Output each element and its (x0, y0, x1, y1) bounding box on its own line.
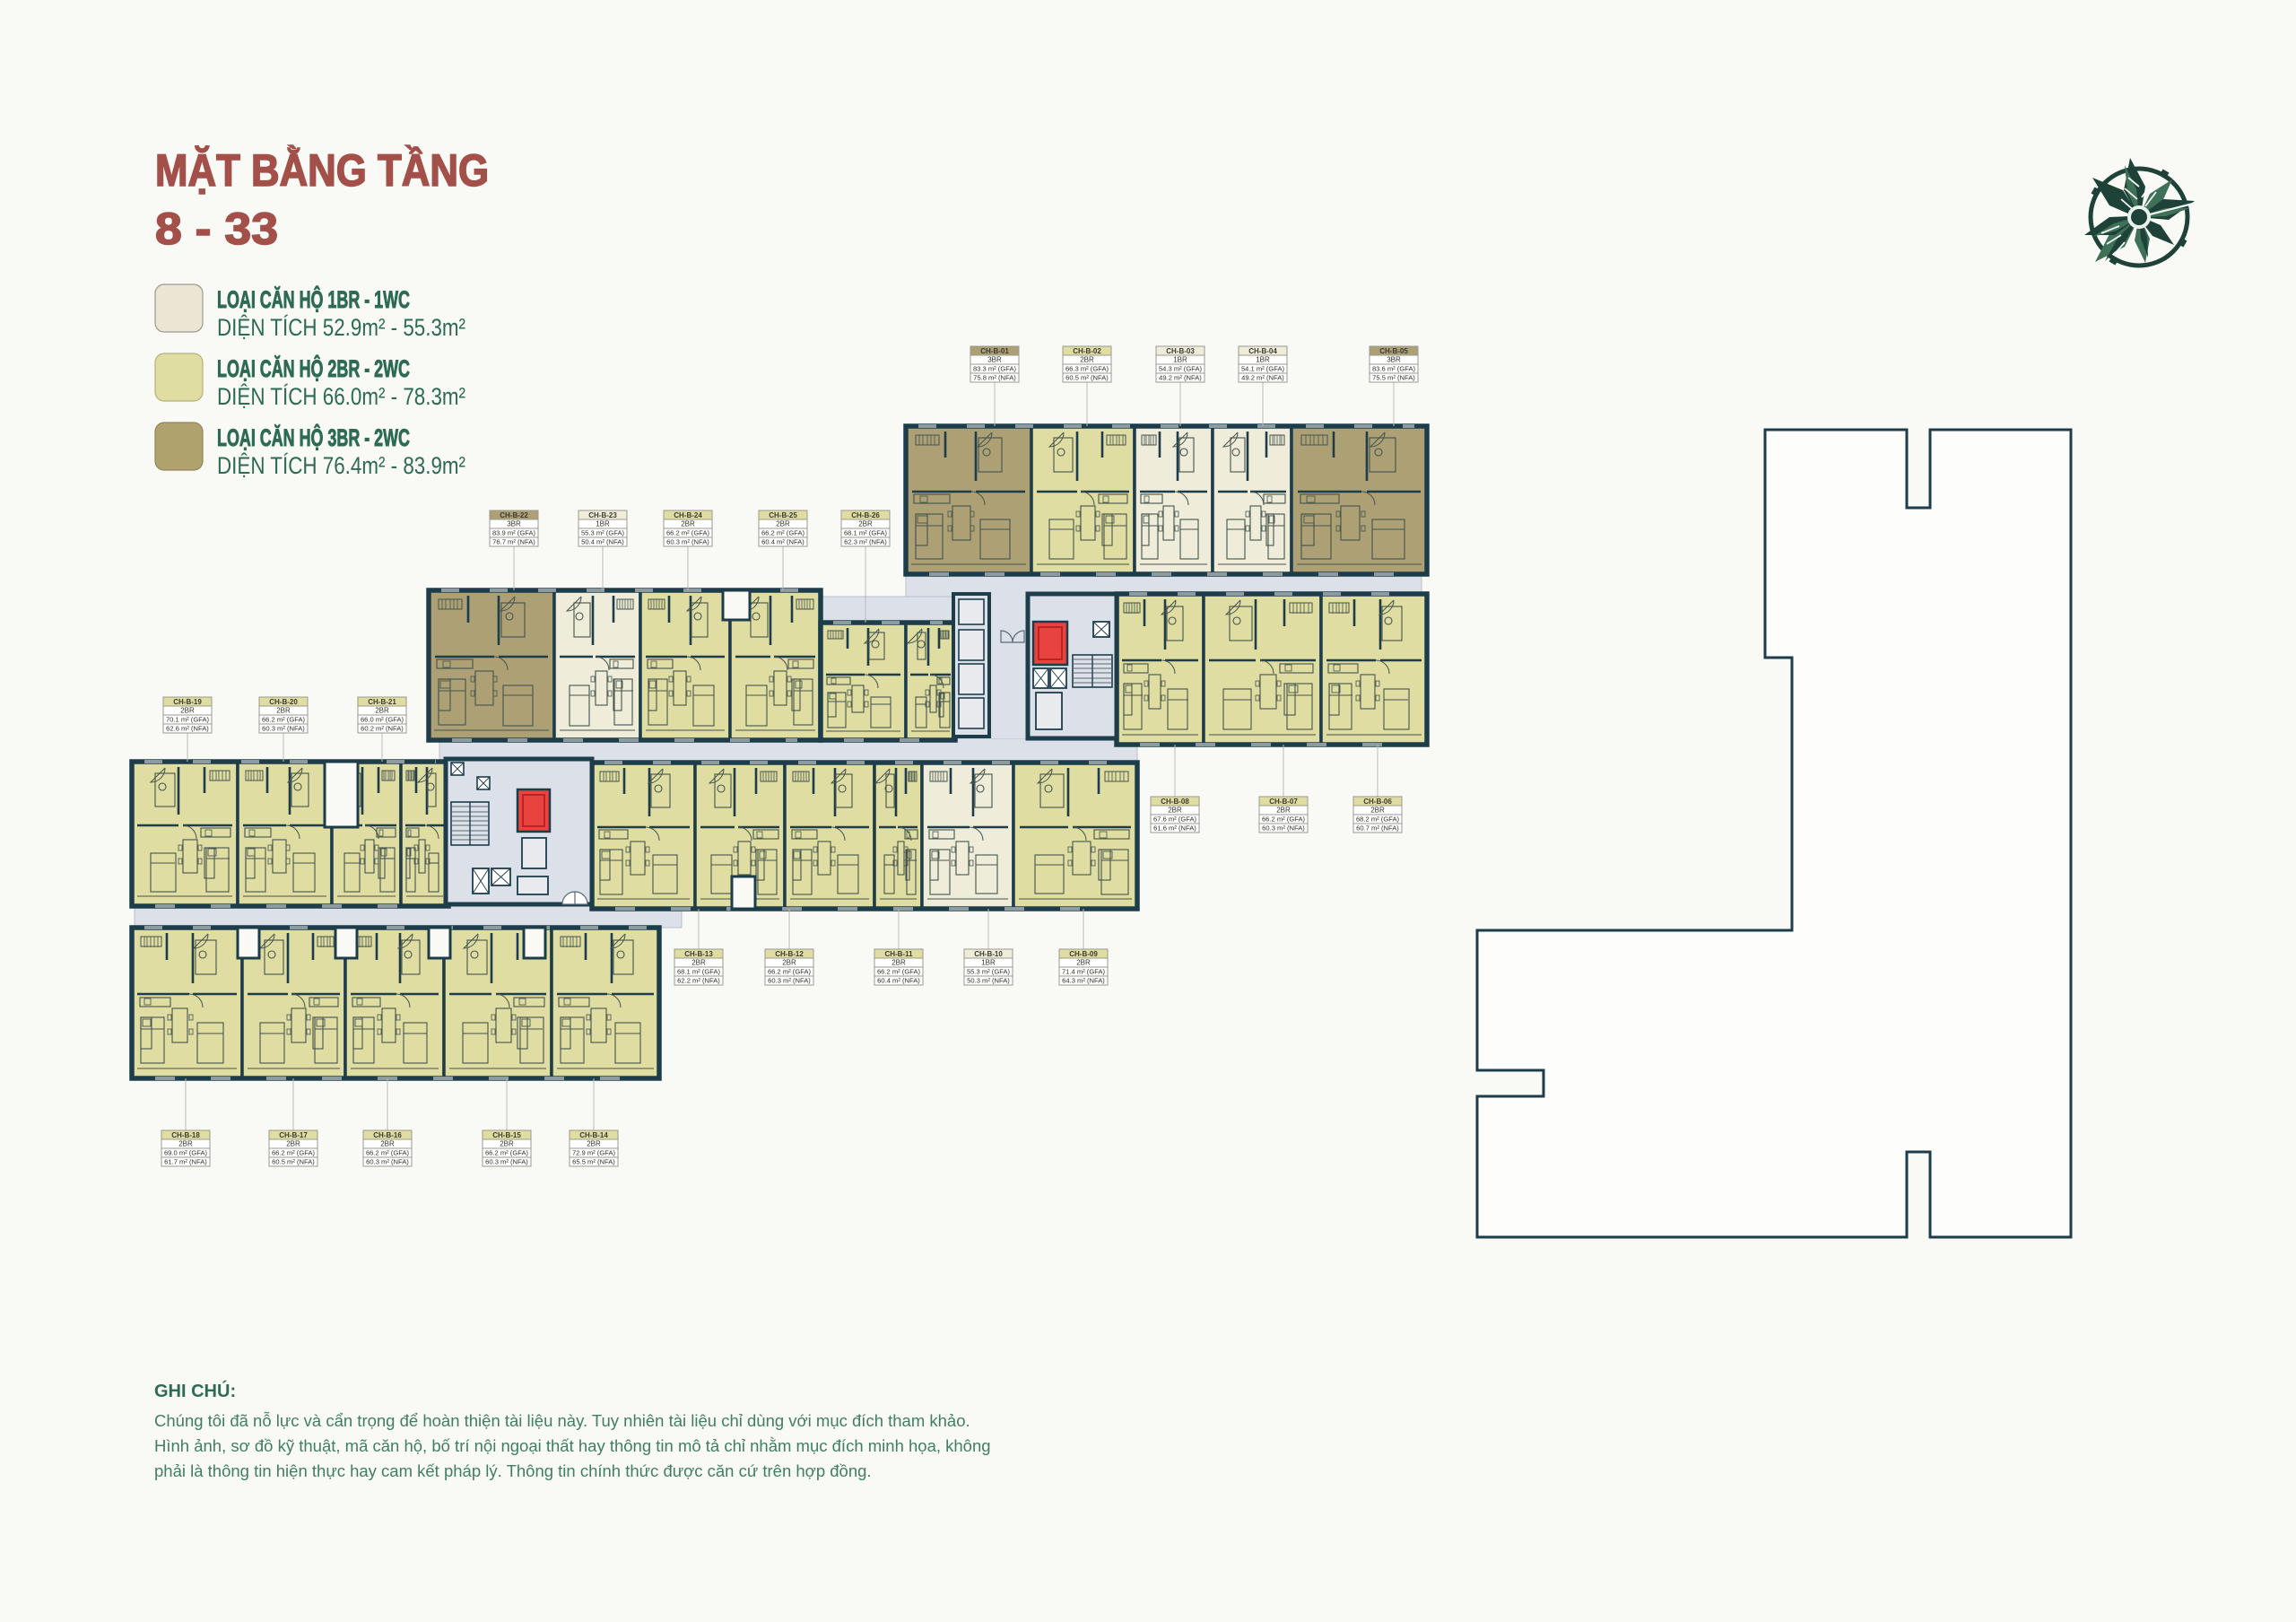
svg-text:66.2 m² (GFA): 66.2 m² (GFA) (485, 1149, 529, 1157)
svg-text:CH-B-23: CH-B-23 (588, 511, 617, 519)
svg-text:CH-B-01: CH-B-01 (980, 347, 1009, 355)
svg-text:phải là thông tin hiện thực ha: phải là thông tin hiện thực hay cam kết … (154, 1461, 872, 1480)
svg-text:62.2 m² (NFA): 62.2 m² (NFA) (677, 977, 720, 985)
svg-text:2BR: 2BR (276, 707, 291, 715)
svg-text:60.5 m² (NFA): 60.5 m² (NFA) (272, 1158, 315, 1166)
svg-text:DIỆN TÍCH 66.0m² - 78.3m²: DIỆN TÍCH 66.0m² - 78.3m² (217, 382, 465, 410)
svg-text:49.2 m² (NFA): 49.2 m² (NFA) (1241, 374, 1284, 382)
svg-text:2BR: 2BR (1370, 807, 1385, 815)
svg-text:1BR: 1BR (596, 520, 610, 528)
svg-text:1BR: 1BR (981, 959, 996, 967)
svg-text:CH-B-08: CH-B-08 (1161, 798, 1189, 806)
svg-text:75.8 m² (NFA): 75.8 m² (NFA) (973, 374, 1016, 382)
svg-text:83.6 m² (GFA): 83.6 m² (GFA) (1372, 365, 1416, 373)
svg-text:60.5 m² (NFA): 60.5 m² (NFA) (1065, 374, 1109, 382)
svg-text:2BR: 2BR (178, 1140, 193, 1148)
svg-text:75.5 m² (NFA): 75.5 m² (NFA) (1372, 374, 1415, 382)
svg-text:83.9 m² (GFA): 83.9 m² (GFA) (492, 529, 536, 537)
svg-text:DIỆN TÍCH 76.4m² - 83.9m²: DIỆN TÍCH 76.4m² - 83.9m² (217, 451, 465, 479)
svg-text:2BR: 2BR (776, 520, 790, 528)
svg-text:68.1 m² (GFA): 68.1 m² (GFA) (844, 529, 888, 537)
svg-text:2BR: 2BR (691, 959, 706, 967)
svg-text:CH-B-24: CH-B-24 (674, 511, 702, 519)
svg-text:CH-B-16: CH-B-16 (373, 1131, 402, 1139)
svg-text:66.2 m² (GFA): 66.2 m² (GFA) (366, 1149, 410, 1157)
svg-text:CH-B-22: CH-B-22 (500, 511, 528, 519)
svg-text:83.3 m² (GFA): 83.3 m² (GFA) (973, 365, 1017, 373)
svg-text:GHI CHÚ:: GHI CHÚ: (154, 1380, 236, 1401)
svg-text:55.3 m² (GFA): 55.3 m² (GFA) (581, 529, 625, 537)
svg-text:CH-B-09: CH-B-09 (1069, 950, 1098, 958)
svg-text:CH-B-07: CH-B-07 (1269, 798, 1298, 806)
svg-text:Chúng tôi đã nỗ lực và cẩn trọ: Chúng tôi đã nỗ lực và cẩn trọng để hoàn… (154, 1411, 970, 1430)
svg-text:LOẠI CĂN HỘ 3BR - 2WC: LOẠI CĂN HỘ 3BR - 2WC (217, 423, 410, 451)
svg-text:60.4 m² (NFA): 60.4 m² (NFA) (761, 538, 804, 546)
svg-text:LOẠI CĂN HỘ 2BR - 2WC: LOẠI CĂN HỘ 2BR - 2WC (217, 354, 410, 382)
svg-text:CH-B-18: CH-B-18 (171, 1131, 200, 1139)
svg-text:CH-B-20: CH-B-20 (269, 698, 298, 706)
svg-text:67.6 m² (GFA): 67.6 m² (GFA) (1153, 815, 1197, 824)
svg-text:60.3 m² (NFA): 60.3 m² (NFA) (1262, 824, 1305, 833)
svg-text:CH-B-05: CH-B-05 (1379, 347, 1408, 355)
svg-text:CH-B-06: CH-B-06 (1363, 798, 1392, 806)
svg-text:68.1 m² (GFA): 68.1 m² (GFA) (677, 968, 721, 976)
svg-text:2BR: 2BR (1076, 959, 1091, 967)
svg-text:60.3 m² (NFA): 60.3 m² (NFA) (262, 725, 305, 733)
svg-text:2BR: 2BR (681, 520, 695, 528)
svg-text:CH-B-04: CH-B-04 (1248, 347, 1277, 355)
svg-text:71.4 m² (GFA): 71.4 m² (GFA) (1062, 968, 1106, 976)
svg-text:CH-B-17: CH-B-17 (279, 1131, 308, 1139)
svg-text:2BR: 2BR (286, 1140, 300, 1148)
svg-text:CH-B-19: CH-B-19 (173, 698, 202, 706)
svg-text:69.0 m² (GFA): 69.0 m² (GFA) (164, 1149, 208, 1157)
svg-text:64.3 m² (NFA): 64.3 m² (NFA) (1062, 977, 1105, 985)
svg-text:66.2 m² (GFA): 66.2 m² (GFA) (768, 968, 812, 976)
svg-text:2BR: 2BR (1080, 356, 1094, 364)
svg-text:Hình ảnh, sơ đồ kỹ thuật, mã c: Hình ảnh, sơ đồ kỹ thuật, mã căn hộ, bố … (154, 1436, 991, 1455)
svg-text:54.3 m² (GFA): 54.3 m² (GFA) (1159, 365, 1203, 373)
svg-text:66.2 m² (GFA): 66.2 m² (GFA) (877, 968, 921, 976)
svg-text:CH-B-11: CH-B-11 (884, 950, 913, 958)
svg-text:66.3 m² (GFA): 66.3 m² (GFA) (1065, 365, 1109, 373)
svg-text:50.3 m² (NFA): 50.3 m² (NFA) (967, 977, 1010, 985)
svg-text:66.2 m² (GFA): 66.2 m² (GFA) (262, 716, 306, 724)
svg-text:CH-B-15: CH-B-15 (492, 1131, 521, 1139)
svg-text:62.6 m² (NFA): 62.6 m² (NFA) (166, 725, 209, 733)
svg-text:66.2 m² (GFA): 66.2 m² (GFA) (1262, 815, 1306, 824)
svg-text:3BR: 3BR (1387, 356, 1401, 364)
svg-text:66.2 m² (GFA): 66.2 m² (GFA) (761, 529, 805, 537)
svg-text:60.3 m² (NFA): 60.3 m² (NFA) (768, 977, 811, 985)
svg-text:66.2 m² (GFA): 66.2 m² (GFA) (666, 529, 710, 537)
svg-text:60.4 m² (NFA): 60.4 m² (NFA) (877, 977, 920, 985)
svg-text:66.2 m² (GFA): 66.2 m² (GFA) (272, 1149, 316, 1157)
svg-text:2BR: 2BR (1276, 807, 1291, 815)
svg-text:60.3 m² (NFA): 60.3 m² (NFA) (666, 538, 709, 546)
svg-text:2BR: 2BR (1168, 807, 1182, 815)
svg-text:2BR: 2BR (858, 520, 873, 528)
svg-text:1BR: 1BR (1173, 356, 1187, 364)
svg-text:61.7 m² (NFA): 61.7 m² (NFA) (164, 1158, 207, 1166)
svg-text:55.3 m² (GFA): 55.3 m² (GFA) (967, 968, 1011, 976)
svg-text:66.0 m² (GFA): 66.0 m² (GFA) (361, 716, 404, 724)
svg-text:54.1 m² (GFA): 54.1 m² (GFA) (1241, 365, 1285, 373)
svg-text:8 - 33: 8 - 33 (155, 204, 278, 254)
svg-text:CH-B-10: CH-B-10 (974, 950, 1003, 958)
svg-text:2BR: 2BR (380, 1140, 395, 1148)
svg-text:50.4 m² (NFA): 50.4 m² (NFA) (581, 538, 624, 546)
svg-text:MẶT BẰNG TẦNG: MẶT BẰNG TẦNG (155, 145, 489, 196)
svg-text:49.2 m² (NFA): 49.2 m² (NFA) (1159, 374, 1202, 382)
svg-text:2BR: 2BR (180, 707, 195, 715)
svg-text:76.7 m² (NFA): 76.7 m² (NFA) (492, 538, 535, 546)
svg-text:2BR: 2BR (587, 1140, 601, 1148)
svg-text:2BR: 2BR (500, 1140, 514, 1148)
svg-text:61.6 m² (NFA): 61.6 m² (NFA) (1153, 824, 1196, 833)
svg-text:62.3 m² (NFA): 62.3 m² (NFA) (844, 538, 887, 546)
svg-text:CH-B-25: CH-B-25 (769, 511, 797, 519)
svg-text:2BR: 2BR (375, 707, 389, 715)
svg-text:3BR: 3BR (507, 520, 521, 528)
svg-text:68.2 m² (GFA): 68.2 m² (GFA) (1356, 815, 1400, 824)
svg-text:70.1 m² (GFA): 70.1 m² (GFA) (166, 716, 210, 724)
svg-text:CH-B-03: CH-B-03 (1166, 347, 1195, 355)
svg-text:3BR: 3BR (987, 356, 1002, 364)
svg-text:CH-B-26: CH-B-26 (851, 511, 880, 519)
svg-text:CH-B-21: CH-B-21 (368, 698, 396, 706)
svg-text:CH-B-12: CH-B-12 (775, 950, 804, 958)
svg-text:60.3 m² (NFA): 60.3 m² (NFA) (485, 1158, 528, 1166)
svg-text:1BR: 1BR (1256, 356, 1270, 364)
svg-text:2BR: 2BR (782, 959, 796, 967)
svg-text:CH-B-14: CH-B-14 (579, 1131, 608, 1139)
svg-text:DIỆN TÍCH 52.9m² - 55.3m²: DIỆN TÍCH 52.9m² - 55.3m² (217, 313, 465, 341)
svg-text:2BR: 2BR (891, 959, 906, 967)
svg-text:65.5 m² (NFA): 65.5 m² (NFA) (572, 1158, 615, 1166)
svg-text:60.2 m² (NFA): 60.2 m² (NFA) (361, 725, 404, 733)
svg-text:60.3 m² (NFA): 60.3 m² (NFA) (366, 1158, 409, 1166)
svg-text:LOẠI CĂN HỘ 1BR - 1WC: LOẠI CĂN HỘ 1BR - 1WC (217, 285, 410, 313)
svg-text:72.9 m² (GFA): 72.9 m² (GFA) (572, 1149, 616, 1157)
svg-text:CH-B-13: CH-B-13 (684, 950, 713, 958)
svg-text:60.7 m² (NFA): 60.7 m² (NFA) (1356, 824, 1399, 833)
svg-text:CH-B-02: CH-B-02 (1073, 347, 1101, 355)
